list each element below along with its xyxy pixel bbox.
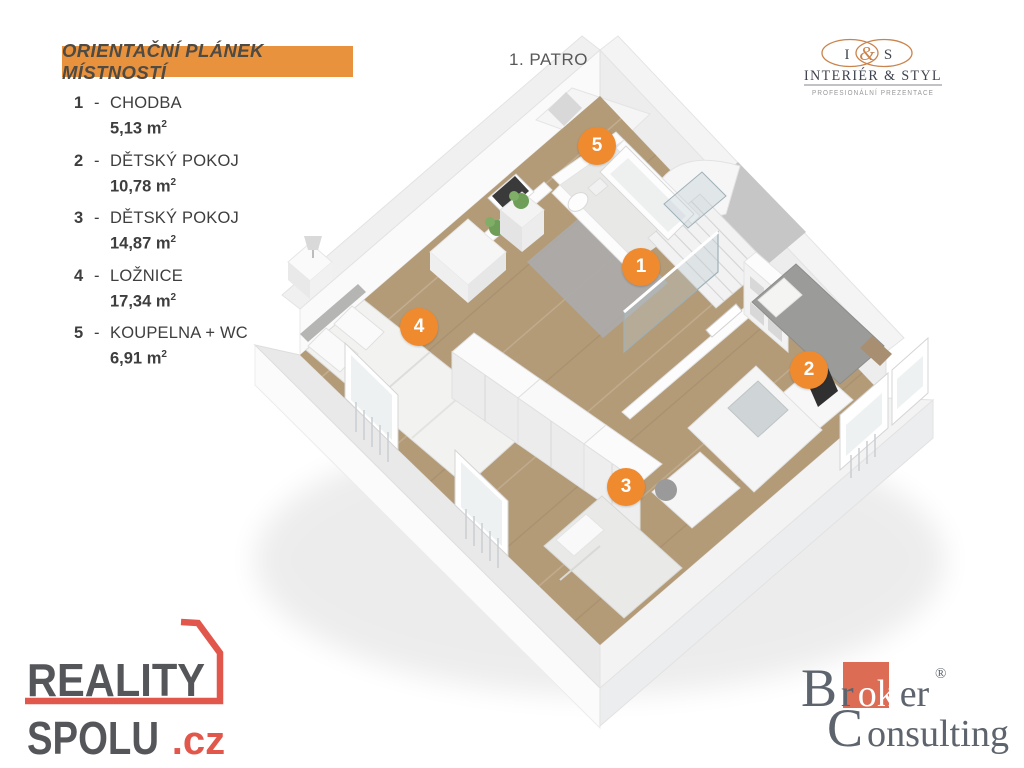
- legend-title-banner: ORIENTAČNÍ PLÁNEK MÍSTNOSTÍ: [62, 46, 353, 77]
- consulting-rest: onsulting: [867, 713, 1009, 755]
- legend: ORIENTAČNÍ PLÁNEK MÍSTNOSTÍ 1 - CHODBA 5…: [62, 46, 362, 381]
- ins-tagline: PROFESIONÁLNÍ PREZENTACE: [812, 88, 934, 97]
- broker-ok: ok: [858, 673, 896, 715]
- legend-item-1: 1 - CHODBA 5,13 m2: [62, 93, 362, 140]
- legend-room-name: CHODBA: [110, 93, 362, 114]
- legend-room-list: 1 - CHODBA 5,13 m2 2 - DĚTSKÝ POKOJ 10,7…: [62, 93, 362, 370]
- reality-spolu-logo: REALITY SPOLU .cz: [25, 616, 235, 761]
- svg-text:SPOLU .cz: SPOLU .cz: [27, 712, 225, 761]
- legend-room-area: 14,87 m2: [110, 229, 362, 255]
- legend-item-4: 4 - LOŽNICE 17,34 m2: [62, 266, 362, 313]
- legend-dash: -: [94, 266, 104, 287]
- floor-label: 1. PATRO: [509, 50, 588, 70]
- legend-dash: -: [94, 93, 104, 114]
- ins-initial-s: S: [884, 47, 892, 63]
- legend-room-area: 10,78 m2: [110, 172, 362, 198]
- legend-room-number: 5: [62, 323, 88, 344]
- room-marker-5: 5: [578, 127, 616, 165]
- broker-reg-mark: ®: [935, 666, 946, 682]
- ins-name: INTERIÉR & STYL: [804, 67, 942, 84]
- legend-room-number: 2: [62, 151, 88, 172]
- legend-dash: -: [94, 208, 104, 229]
- legend-room-area: 6,91 m2: [110, 344, 362, 370]
- legend-room-area: 5,13 m2: [110, 114, 362, 140]
- spolu-text: SPOLU: [27, 712, 159, 761]
- broker-er: er: [900, 673, 930, 715]
- legend-room-name: DĚTSKÝ POKOJ: [110, 208, 362, 229]
- legend-dash: -: [94, 323, 104, 344]
- legend-room-name: KOUPELNA + WC: [110, 323, 362, 344]
- room-marker-1: 1: [622, 248, 660, 286]
- room-marker-3: 3: [607, 468, 645, 506]
- room-marker-4: 4: [400, 308, 438, 346]
- legend-title: ORIENTAČNÍ PLÁNEK MÍSTNOSTÍ: [62, 40, 353, 84]
- legend-room-number: 4: [62, 266, 88, 287]
- legend-room-number: 1: [62, 93, 88, 114]
- reality-text: REALITY: [27, 654, 205, 706]
- legend-room-number: 3: [62, 208, 88, 229]
- floor-plan-page: ORIENTAČNÍ PLÁNEK MÍSTNOSTÍ 1 - CHODBA 5…: [0, 0, 1024, 768]
- legend-room-area: 17,34 m2: [110, 287, 362, 313]
- room-marker-2: 2: [790, 351, 828, 389]
- legend-room-name: DĚTSKÝ POKOJ: [110, 151, 362, 172]
- legend-item-2: 2 - DĚTSKÝ POKOJ 10,78 m2: [62, 151, 362, 198]
- interier-styl-logo: I & S INTERIÉR & STYL PROFESIONÁLNÍ PREZ…: [798, 38, 948, 107]
- broker-consulting-logo: B r ok er ® C onsulting: [797, 650, 1017, 755]
- legend-item-5: 5 - KOUPELNA + WC 6,91 m2: [62, 323, 362, 370]
- legend-room-name: LOŽNICE: [110, 266, 362, 287]
- ins-ampersand: &: [859, 43, 875, 65]
- ins-initial-i: I: [845, 47, 850, 63]
- spolu-tld: .cz: [172, 719, 225, 761]
- legend-item-3: 3 - DĚTSKÝ POKOJ 14,87 m2: [62, 208, 362, 255]
- legend-dash: -: [94, 151, 104, 172]
- consulting-c: C: [827, 698, 863, 755]
